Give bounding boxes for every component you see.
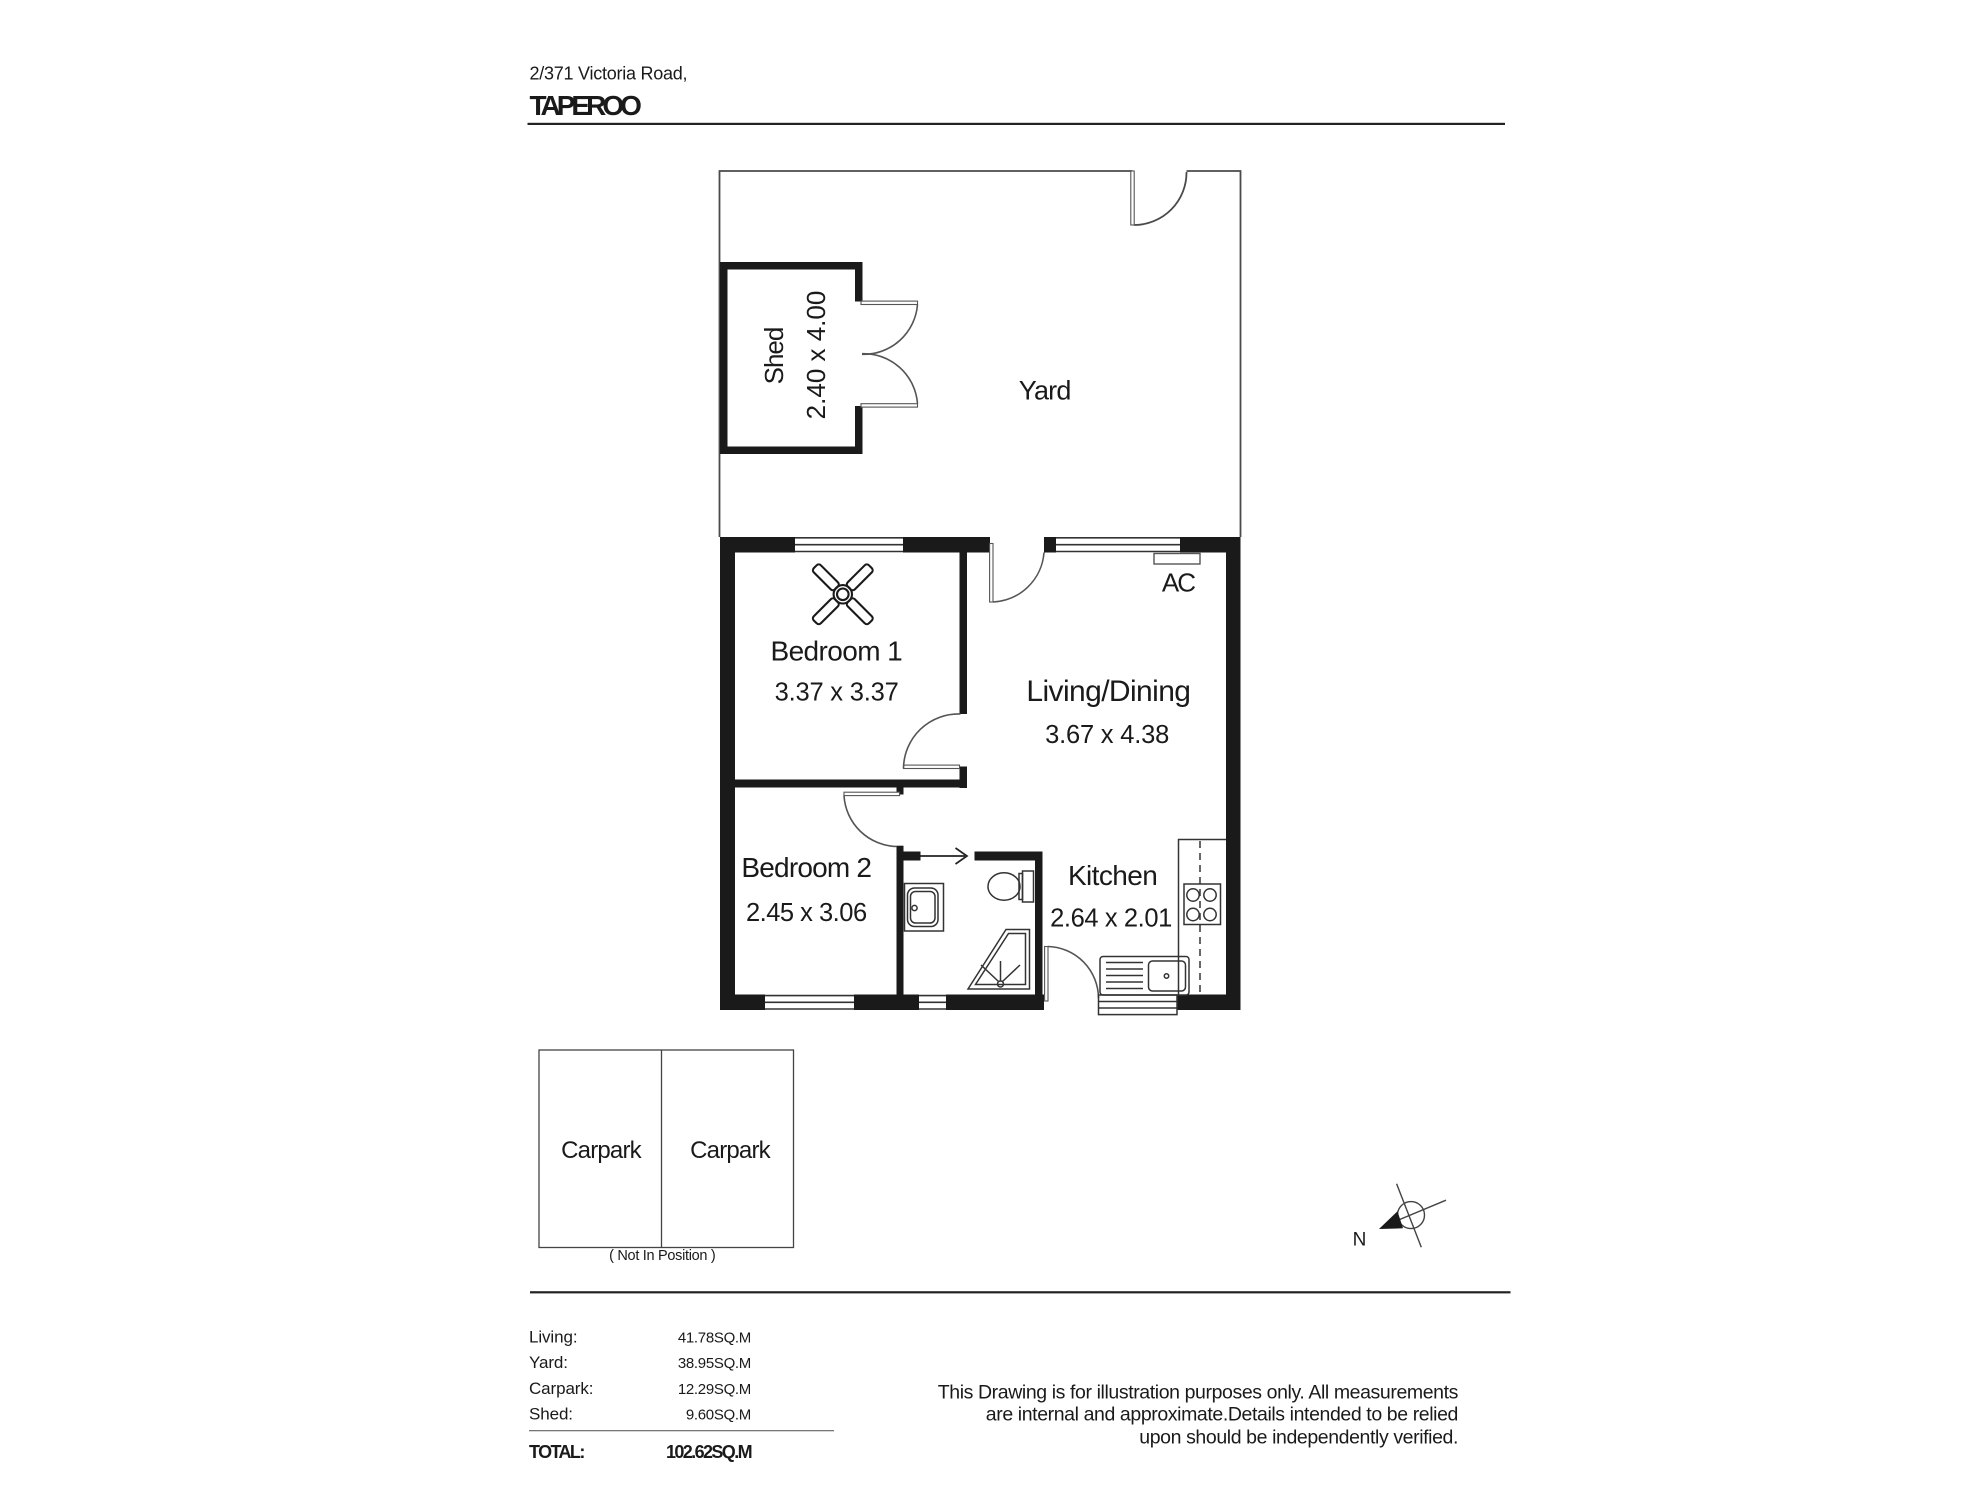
svg-text:N: N bbox=[1353, 1230, 1367, 1251]
svg-text:38.95SQ.M: 38.95SQ.M bbox=[678, 1355, 751, 1372]
svg-text:are internal and approximate.D: are internal and approximate.Details int… bbox=[986, 1404, 1458, 1426]
svg-text:2.45 x 3.06: 2.45 x 3.06 bbox=[746, 899, 867, 927]
svg-text:Shed: Shed bbox=[759, 328, 789, 385]
svg-text:Bedroom 2: Bedroom 2 bbox=[741, 852, 871, 883]
svg-text:Carpark: Carpark bbox=[561, 1137, 643, 1164]
svg-text:3.67 x 4.38: 3.67 x 4.38 bbox=[1045, 721, 1169, 749]
svg-text:41.78SQ.M: 41.78SQ.M bbox=[678, 1329, 751, 1346]
svg-text:upon should be independently v: upon should be independently verified. bbox=[1139, 1427, 1458, 1449]
svg-text:AC: AC bbox=[1162, 568, 1195, 598]
svg-text:TAPEROO: TAPEROO bbox=[530, 90, 642, 121]
svg-text:Yard: Yard bbox=[1019, 376, 1071, 406]
svg-text:This Drawing is for illustrati: This Drawing is for illustration purpose… bbox=[938, 1382, 1459, 1404]
svg-text:Bedroom 1: Bedroom 1 bbox=[771, 636, 903, 667]
svg-text:2.40 x 4.00: 2.40 x 4.00 bbox=[801, 291, 831, 420]
svg-text:9.60SQ.M: 9.60SQ.M bbox=[686, 1407, 751, 1424]
svg-text:Kitchen: Kitchen bbox=[1068, 860, 1157, 891]
svg-text:3.37 x 3.37: 3.37 x 3.37 bbox=[775, 679, 899, 707]
svg-text:( Not In Position ): ( Not In Position ) bbox=[609, 1248, 715, 1264]
svg-text:2/371 Victoria Road,: 2/371 Victoria Road, bbox=[530, 64, 688, 84]
svg-text:2.64 x 2.01: 2.64 x 2.01 bbox=[1050, 905, 1172, 933]
svg-text:TOTAL:: TOTAL: bbox=[529, 1442, 584, 1462]
svg-text:Yard:: Yard: bbox=[529, 1353, 568, 1372]
svg-text:Living:: Living: bbox=[529, 1327, 577, 1346]
svg-text:Carpark:: Carpark: bbox=[529, 1379, 593, 1398]
svg-text:Shed:: Shed: bbox=[529, 1405, 573, 1424]
svg-text:12.29SQ.M: 12.29SQ.M bbox=[678, 1381, 751, 1398]
svg-text:Living/Dining: Living/Dining bbox=[1026, 675, 1190, 708]
svg-text:Carpark: Carpark bbox=[690, 1137, 772, 1164]
svg-text:102.62SQ.M: 102.62SQ.M bbox=[666, 1442, 752, 1462]
